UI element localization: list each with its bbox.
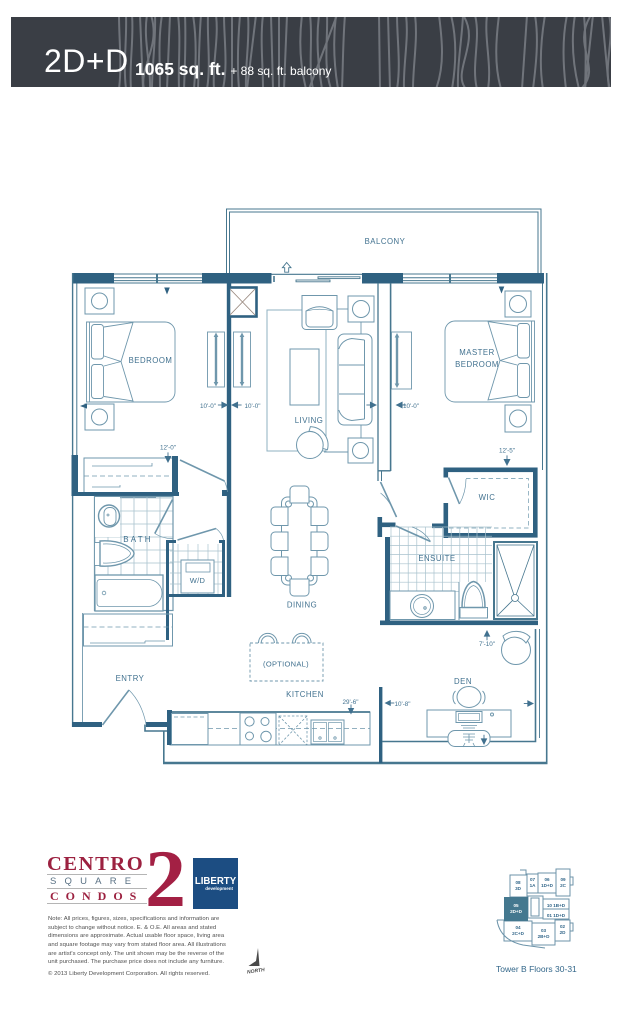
svg-text:3D: 3D — [515, 886, 522, 891]
svg-text:7'-10": 7'-10" — [479, 641, 495, 648]
svg-text:05: 05 — [513, 903, 519, 908]
svg-text:09: 09 — [560, 877, 566, 882]
svg-text:10'-0": 10'-0" — [244, 403, 260, 410]
svg-text:2C: 2C — [560, 883, 567, 888]
svg-text:BALCONY: BALCONY — [365, 237, 406, 246]
svg-text:12'-0": 12'-0" — [160, 445, 176, 452]
svg-text:04: 04 — [515, 925, 521, 930]
svg-text:29'-6": 29'-6" — [342, 699, 358, 706]
svg-text:BATH: BATH — [123, 535, 153, 544]
svg-text:1A: 1A — [530, 883, 537, 888]
svg-text:DEN: DEN — [454, 677, 472, 686]
svg-text:W/D: W/D — [190, 576, 206, 585]
svg-text:KITCHEN: KITCHEN — [286, 690, 324, 699]
svg-text:07: 07 — [530, 877, 536, 882]
svg-text:ENSUITE: ENSUITE — [418, 554, 455, 563]
svg-text:2D+D: 2D+D — [510, 909, 523, 914]
svg-text:LIVING: LIVING — [295, 416, 324, 425]
svg-text:06: 06 — [544, 877, 550, 882]
svg-text:02: 02 — [560, 924, 566, 929]
svg-text:1D+D: 1D+D — [541, 883, 554, 888]
svg-text:2D: 2D — [560, 930, 567, 935]
svg-text:2C+D: 2C+D — [512, 931, 525, 936]
svg-text:10'-8": 10'-8" — [395, 701, 411, 708]
svg-text:BEDROOM: BEDROOM — [129, 356, 173, 365]
svg-text:NORTH: NORTH — [247, 967, 266, 975]
svg-text:10 1B+D: 10 1B+D — [547, 903, 566, 908]
svg-text:10'-0": 10'-0" — [403, 403, 419, 410]
svg-text:01 1D+D: 01 1D+D — [547, 913, 566, 918]
svg-text:DINING: DINING — [287, 601, 317, 610]
svg-text:WIC: WIC — [479, 493, 496, 502]
svg-text:08: 08 — [515, 880, 521, 885]
svg-text:10'-0": 10'-0" — [200, 403, 216, 410]
svg-text:MASTER: MASTER — [459, 348, 495, 357]
svg-text:03: 03 — [541, 928, 547, 933]
svg-text:ENTRY: ENTRY — [116, 674, 145, 683]
svg-text:BEDROOM: BEDROOM — [455, 360, 499, 369]
svg-text:2B+D: 2B+D — [538, 934, 551, 939]
svg-text:(OPTIONAL): (OPTIONAL) — [263, 660, 309, 669]
svg-text:12'-5": 12'-5" — [499, 448, 515, 455]
